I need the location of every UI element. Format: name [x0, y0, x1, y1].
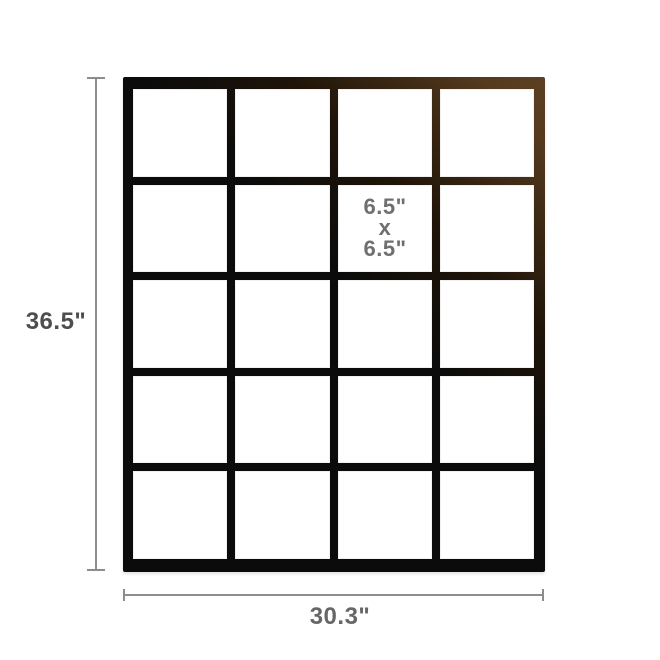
dimension-cap-left	[123, 589, 125, 601]
grid-cell-opening	[338, 471, 432, 559]
grid-cell-opening	[440, 280, 534, 368]
grid-cell-opening	[440, 185, 534, 273]
cell-dimension-label: 6.5" x 6.5"	[335, 196, 435, 259]
grid-cell-opening	[133, 185, 227, 273]
dimension-cap-top	[87, 77, 105, 79]
grid-cell-opening	[133, 471, 227, 559]
width-dimension-label: 30.3"	[278, 603, 402, 631]
dimension-cap-bottom	[87, 569, 105, 571]
product-dimension-diagram: 6.5" x 6.5" 36.5" 30.3"	[0, 0, 660, 660]
cell-dimension-width: 6.5"	[335, 196, 435, 217]
grid-cell-opening	[133, 89, 227, 177]
dimension-cap-right	[542, 589, 544, 601]
cell-dimension-height: 6.5"	[335, 238, 435, 259]
grid-cell-opening	[235, 280, 329, 368]
grid-cell-opening	[235, 89, 329, 177]
grid-cell-opening	[338, 89, 432, 177]
height-dimension-label: 36.5"	[10, 308, 102, 336]
grid-openings	[133, 89, 534, 559]
grid-cell-opening	[440, 89, 534, 177]
grid-cell-opening	[235, 471, 329, 559]
grid-cell-opening	[235, 185, 329, 273]
grid-cell-opening	[440, 376, 534, 464]
grid-cell-opening	[440, 471, 534, 559]
grid-frame	[123, 77, 545, 572]
width-dimension-line	[123, 594, 544, 596]
grid-cell-opening	[133, 376, 227, 464]
cell-dimension-x: x	[335, 217, 435, 238]
grid-cell-opening	[235, 376, 329, 464]
grid-cell-opening	[338, 280, 432, 368]
grid-cell-opening	[133, 280, 227, 368]
grid-cell-opening	[338, 376, 432, 464]
